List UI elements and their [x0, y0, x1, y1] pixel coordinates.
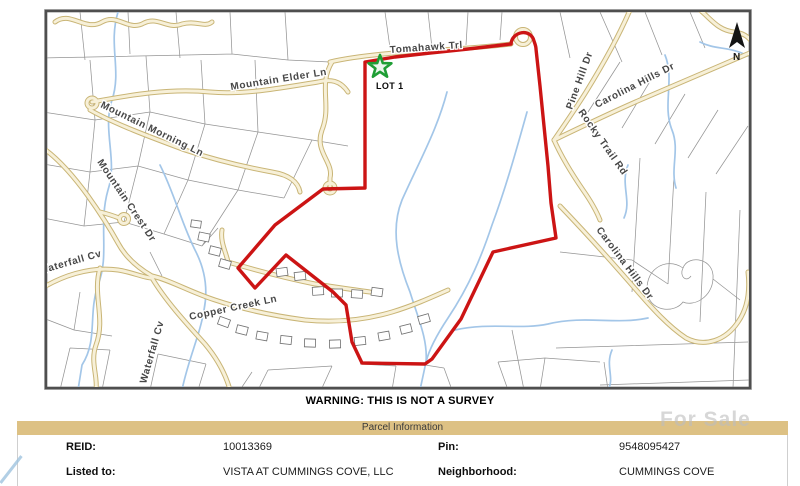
field-label-reid: REID:: [66, 441, 96, 453]
field-label-neighborhood: Neighborhood:: [438, 466, 517, 478]
lot-label: LOT 1: [376, 81, 404, 91]
field-value-neighborhood: CUMMINGS COVE: [619, 466, 714, 478]
parcel-map: LOT 1 Tomahawk Trl Mountain Elder Ln Mou…: [43, 8, 753, 391]
field-value-pin: 9548095427: [619, 441, 680, 453]
field-value-reid: 10013369: [223, 441, 272, 453]
field-label-listed-to: Listed to:: [66, 466, 116, 478]
field-label-pin: Pin:: [438, 441, 459, 453]
parcel-map-svg: LOT 1 Tomahawk Trl Mountain Elder Ln Mou…: [43, 8, 753, 391]
north-label: N: [733, 52, 740, 63]
field-value-listed-to: VISTA AT CUMMINGS COVE, LLC: [223, 466, 394, 478]
warning-text: WARNING: THIS IS NOT A SURVEY: [0, 395, 800, 407]
map-outer-border: [45, 10, 752, 390]
parcel-information-table: REID: 10013369 Pin: 9548095427 Listed to…: [17, 435, 788, 486]
for-sale-watermark: For Sale: [660, 408, 751, 432]
parcel-report-page: { "map": { "warning": "WARNING: THIS IS …: [0, 0, 800, 486]
